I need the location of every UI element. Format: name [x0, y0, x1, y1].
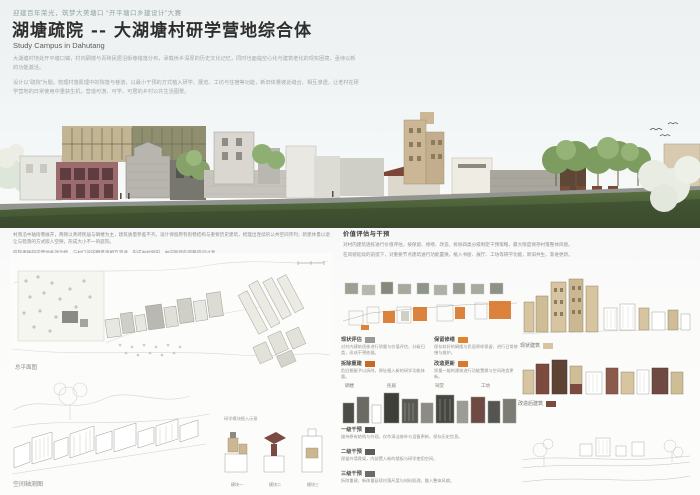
- legend-label: 三级干预: [341, 470, 362, 477]
- legend-desc: 保存较好的碉楼与民居原样保留，进行日常修缮与维护。: [434, 344, 519, 356]
- typology-label-3: 祠堂: [435, 382, 444, 389]
- analysis-right-heading: 价值评估与干预: [343, 229, 691, 238]
- intervention-legend: 现状评估 对村内建筑逐栋进行质量与价值评估，分级归类，形成干预依据。 保留修缮 …: [341, 336, 519, 380]
- legend-item: 现状评估 对村内建筑逐栋进行质量与价值评估，分级归类，形成干预依据。: [341, 336, 426, 356]
- legend-swatch: [365, 449, 375, 455]
- typology-label-1: 碉楼: [345, 382, 354, 389]
- module-note: 研学模块植入示意: [224, 416, 258, 422]
- module-3-diagram: [298, 424, 328, 476]
- axon-caption: 空间轴测图: [13, 480, 43, 488]
- analysis-left-p1: 村落沿中轴街巷展开，两侧以青砖民居与碉楼为主，建筑质量参差不齐。设计保留原有街巷…: [13, 231, 331, 246]
- legend-item: 一级干预 维持原有结构与外观，仅作清洁修补与设备更新，保存历史信息。: [341, 426, 519, 444]
- strip2-swatch: [546, 401, 556, 407]
- strip2-caption-text: 改造后建筑: [518, 400, 543, 407]
- legend-desc: 质量一般的建筑进行功能置换与空间改造更新。: [434, 368, 519, 380]
- street-axonometric-drawing: 空间轴测图: [10, 376, 215, 490]
- legend-label: 拆除重建: [341, 360, 362, 367]
- legend-label: 保留修缮: [434, 336, 455, 343]
- legend-swatch: [458, 337, 468, 343]
- legend-swatch: [365, 427, 375, 433]
- existing-buildings-caption: 现状建筑: [520, 342, 553, 349]
- assessment-diagram: [341, 281, 519, 333]
- legend-item: 保留修缮 保存较好的碉楼与民居原样保留，进行日常修缮与维护。: [434, 336, 519, 356]
- module-1-diagram: [222, 424, 252, 476]
- page-subtitle-en: Study Campus in Dahutang: [13, 41, 105, 50]
- typology-label-2: 民居: [387, 383, 396, 389]
- legend-label: 现状评估: [341, 336, 362, 343]
- village-sketch: [520, 410, 692, 492]
- module-label: 模块二: [260, 482, 290, 488]
- module-2-diagram: [260, 424, 290, 476]
- intervention-highlights: [361, 301, 511, 330]
- legend-item: 三级干预 拆除重建，新体量延续村落尺度与材料肌理，融入整体风貌。: [341, 470, 519, 488]
- module-thumb: 模块三: [298, 424, 328, 488]
- module-thumb: 模块二: [260, 424, 290, 488]
- legend-item: 改造更新 质量一般的建筑进行功能置换与空间改造更新。: [434, 360, 519, 380]
- strip1-swatch: [543, 343, 553, 349]
- intro-paragraph-2: 设计以“疏院”为题，梳理村落肌理中的院落与巷道，以最小干预的方式植入研学、展览、…: [13, 79, 359, 97]
- legend-swatch: [458, 361, 468, 367]
- analysis-right-p2: 在风貌延续的前提下，对重要节点建筑进行功能置换，植入书屋、展厅、工坊等研学功能，…: [343, 251, 691, 258]
- analysis-right-p1: 对村内建筑逐栋进行价值评估，按保留、修缮、改造、拆除四类分级制定干预策略，最大限…: [343, 241, 691, 248]
- hero-rendering: [0, 98, 700, 228]
- legend-item: 拆除重建 危旧棚屋予以拆除，原址植入新的研学功能体量。: [341, 360, 426, 380]
- legend-label: 二级干预: [341, 448, 362, 455]
- phase-legend: 一级干预 维持原有结构与外观，仅作清洁修补与设备更新，保存历史信息。 二级干预 …: [341, 426, 519, 488]
- intro-text: 大湖塘村地处开平塘口镇，村内碉楼与青砖民居沿街巷错落分布，承载侨乡深厚的历史文化…: [13, 55, 359, 103]
- renovated-buildings-strip: [520, 354, 692, 398]
- strip1-caption-text: 现状建筑: [520, 342, 540, 349]
- legend-label: 一级干预: [341, 426, 362, 433]
- legend-swatch: [365, 361, 375, 367]
- typology-diagram: 碉楼 民居 祠堂 工坊: [341, 381, 519, 425]
- site-plan-drawing: 总平面图: [10, 253, 332, 375]
- legend-swatch: [365, 471, 375, 477]
- legend-desc: 维持原有结构与外观，仅作清洁修补与设备更新，保存历史信息。: [341, 434, 519, 440]
- site-plan-caption: 总平面图: [15, 363, 38, 371]
- legend-desc: 危旧棚屋予以拆除，原址植入新的研学功能体量。: [341, 368, 426, 380]
- legend-swatch: [365, 337, 375, 343]
- legend-label: 改造更新: [434, 360, 455, 367]
- page-title: 湖塘疏院 -- 大湖塘村研学营地综合体: [12, 16, 312, 41]
- legend-desc: 保留外墙骨架，内部置入新的楼板与研学使用空间。: [341, 456, 519, 462]
- module-thumb: 模块一: [222, 424, 252, 488]
- legend-item: 二级干预 保留外墙骨架，内部置入新的楼板与研学使用空间。: [341, 448, 519, 466]
- renovated-buildings-caption: 改造后建筑: [518, 400, 556, 407]
- typology-label-4: 工坊: [481, 382, 490, 389]
- analysis-right-block: 价值评估与干预 对村内建筑逐栋进行价值评估，按保留、修缮、改造、拆除四类分级制定…: [343, 229, 691, 262]
- module-label: 模块一: [222, 482, 252, 488]
- legend-desc: 拆除重建，新体量延续村落尺度与材料肌理，融入整体风貌。: [341, 478, 519, 484]
- intro-paragraph-1: 大湖塘村地处开平塘口镇，村内碉楼与青砖民居沿街巷错落分布，承载侨乡深厚的历史文化…: [13, 55, 359, 73]
- module-thumbs: 模块一 模块二 模块三: [222, 424, 332, 488]
- legend-desc: 对村内建筑逐栋进行质量与价值评估，分级归类，形成干预依据。: [341, 344, 426, 356]
- module-label: 模块三: [298, 482, 328, 488]
- existing-buildings-strip: [520, 272, 692, 340]
